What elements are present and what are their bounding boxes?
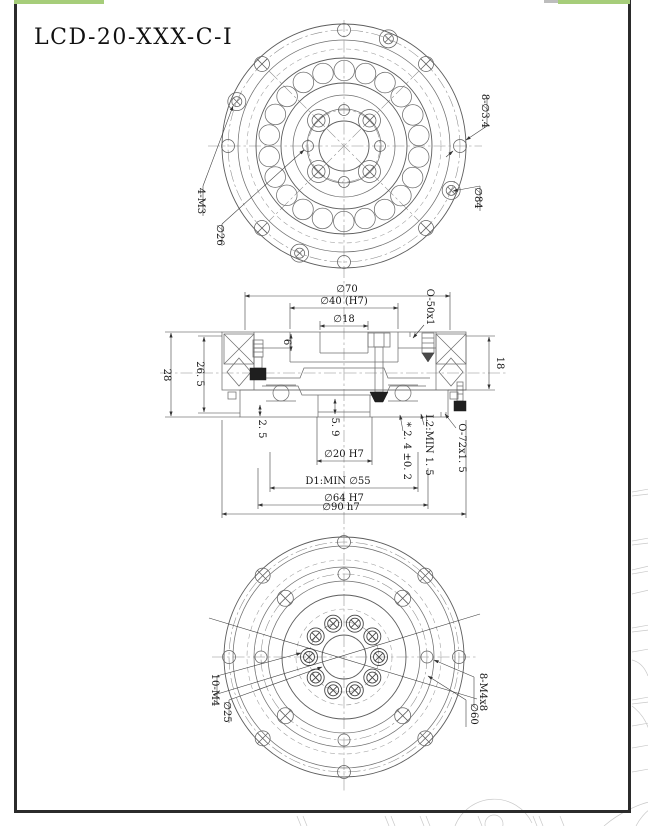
section-view: ∅70 ∅40 (H7) ∅18 6 O-50x1 28 26. 5 18 2.… [161,284,505,518]
dim-5-9: 5. 9 [329,417,340,436]
drawing-title: LCD-20-XXX-C-I [34,25,233,50]
bottom-view-leaders [209,614,480,727]
page-frame [14,0,631,813]
dim-oring-top: O-50x1 [424,289,435,326]
engineering-drawing-canvas: LCD-20-XXX-C-I [0,0,648,826]
label-d60: ∅60 [468,703,479,724]
bolt-head [250,368,266,380]
dim-d90: ∅90 h7 [322,502,359,513]
dim-6: 6 [281,339,292,345]
top-view-leaders [203,97,487,246]
dim-d40: ∅40 (H7) [320,296,368,307]
label-d25: ∅25 [221,701,232,722]
label-8d34: 8-∅3.4 [479,94,490,128]
label-4m3: 4-M3 [195,188,206,214]
dim-28: 28 [161,369,172,382]
label-d26: ∅26 [214,224,225,245]
dim-oring-bot: O-72x1. 5 [456,423,467,472]
dim-d70: ∅70 [336,284,357,295]
dim-18: 18 [494,357,505,370]
dim-d18: ∅18 [333,314,354,325]
plug-tip [422,353,434,362]
dim-l2min: L2:MIN 1. 5 [423,414,434,476]
corner-highlight-marks [14,0,630,4]
dim-tol: * 2. 4 ±0. 2 [401,422,412,480]
screw-head [454,401,466,411]
label-d84: ∅84 [472,187,483,208]
drawing-page: LCD-20-XXX-C-I [0,0,648,826]
dim-d20: ∅20 H7 [324,449,364,460]
dim-2-5: 2. 5 [256,419,267,438]
countersunk-screw-head [370,392,388,402]
dim-d1min: D1:MIN ∅55 [305,476,370,487]
label-10m4: 10-M4 [209,674,220,707]
dim-26-5: 26. 5 [194,361,205,386]
